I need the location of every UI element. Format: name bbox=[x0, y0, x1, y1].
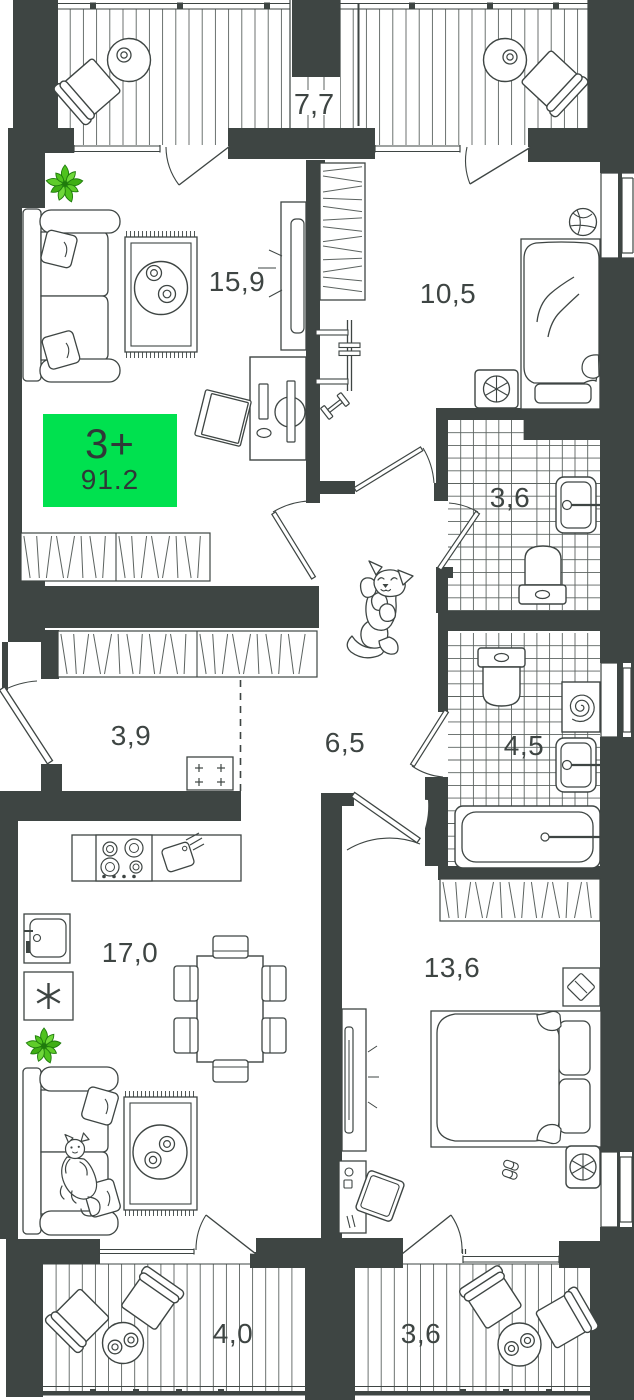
svg-text:7,7: 7,7 bbox=[294, 89, 334, 121]
svg-text:4,5: 4,5 bbox=[504, 730, 544, 761]
svg-text:91.2: 91.2 bbox=[81, 464, 140, 495]
svg-text:13,6: 13,6 bbox=[424, 952, 481, 983]
svg-text:3,6: 3,6 bbox=[490, 482, 530, 513]
svg-text:6,5: 6,5 bbox=[325, 727, 365, 758]
svg-text:3,6: 3,6 bbox=[401, 1318, 441, 1349]
svg-text:3,9: 3,9 bbox=[111, 720, 151, 751]
svg-text:3+: 3+ bbox=[85, 420, 135, 467]
svg-text:4,0: 4,0 bbox=[213, 1318, 253, 1349]
svg-text:10,5: 10,5 bbox=[420, 278, 477, 309]
svg-text:17,0: 17,0 bbox=[102, 937, 159, 968]
svg-text:15,9: 15,9 bbox=[209, 266, 266, 297]
